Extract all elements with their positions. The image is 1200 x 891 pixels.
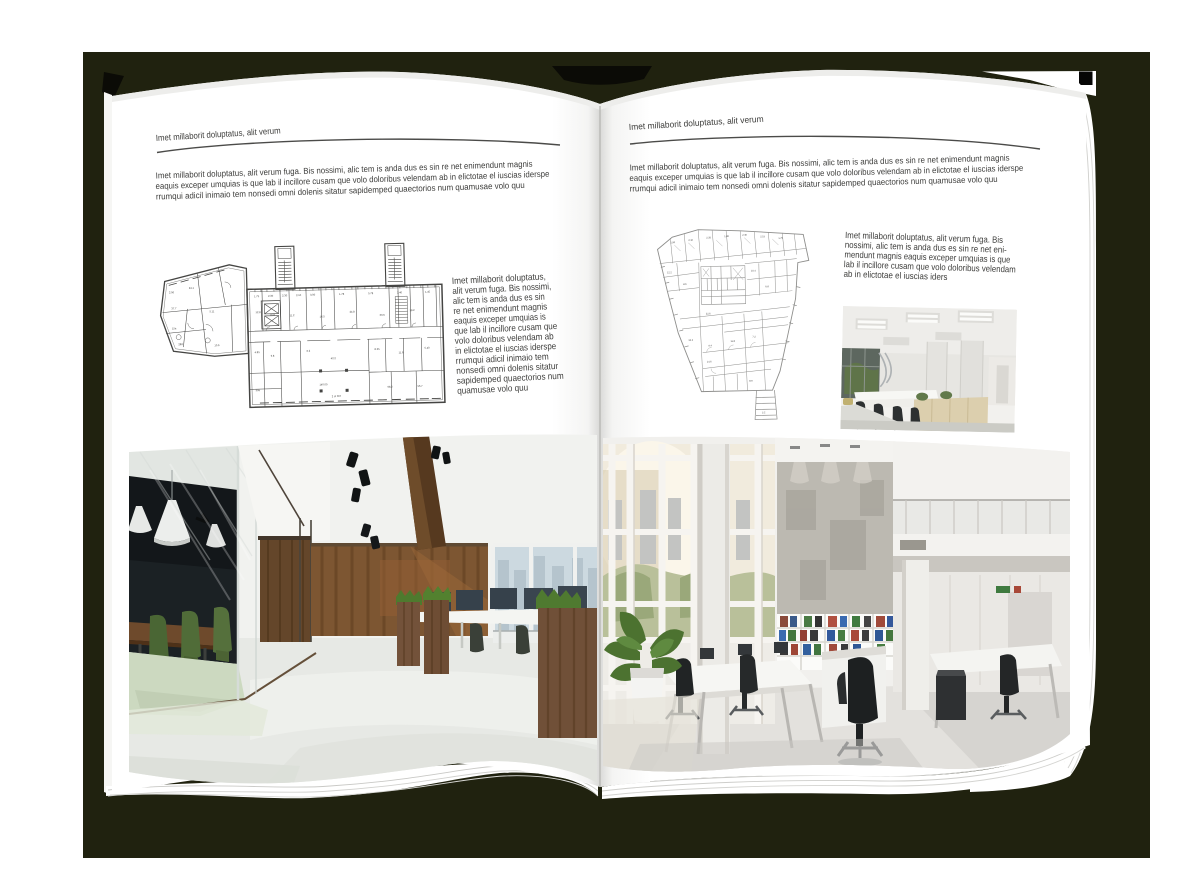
svg-text:5.40: 5.40	[424, 346, 430, 350]
svg-text:23a: 23a	[256, 388, 261, 392]
svg-text:11.2: 11.2	[290, 313, 296, 317]
svg-text:15a: 15a	[172, 326, 177, 330]
svg-text:2.35: 2.35	[706, 236, 711, 239]
svg-text:140.00: 140.00	[319, 382, 328, 386]
svg-text:16.5: 16.5	[320, 314, 326, 318]
svg-text:11.6: 11.6	[399, 350, 405, 354]
svg-text:24.8: 24.8	[349, 310, 355, 314]
svg-text:42.2: 42.2	[331, 356, 337, 360]
svg-text:1.75: 1.75	[254, 294, 260, 298]
svg-text:10.4: 10.4	[751, 269, 756, 272]
svg-text:2.10: 2.10	[296, 293, 302, 297]
svg-text:24.1: 24.1	[189, 286, 195, 290]
svg-text:2.40: 2.40	[742, 234, 747, 237]
svg-text:1.45: 1.45	[425, 290, 431, 294]
svg-text:288: 288	[178, 342, 183, 346]
svg-text:10.6: 10.6	[214, 343, 220, 347]
svg-text:1.75: 1.75	[778, 237, 783, 240]
svg-text:2.06: 2.06	[169, 290, 175, 294]
svg-text:56.7: 56.7	[417, 384, 423, 388]
svg-text:2 of 007: 2 of 007	[332, 394, 342, 398]
svg-text:2.30: 2.30	[282, 293, 288, 297]
svg-text:12.2: 12.2	[667, 271, 672, 274]
svg-text:22.6: 22.6	[706, 312, 711, 315]
svg-text:11.8: 11.8	[730, 340, 735, 343]
svg-text:10.8: 10.8	[270, 313, 276, 317]
svg-text:16.2: 16.2	[688, 339, 693, 342]
svg-text:30.6: 30.6	[380, 313, 386, 317]
svg-text:1.78: 1.78	[339, 292, 345, 296]
svg-text:2.40: 2.40	[397, 290, 403, 294]
svg-text:14.6: 14.6	[707, 360, 712, 363]
svg-text:2.30: 2.30	[268, 294, 274, 298]
svg-text:3.00: 3.00	[310, 293, 316, 297]
svg-text:2.15: 2.15	[760, 235, 765, 238]
svg-text:12.8: 12.8	[255, 310, 261, 314]
svg-text:2.10: 2.10	[688, 239, 693, 242]
svg-text:5.11: 5.11	[209, 309, 215, 313]
svg-text:1.90: 1.90	[670, 241, 675, 244]
svg-text:8.35: 8.35	[374, 347, 380, 351]
svg-text:18.2: 18.2	[409, 308, 415, 312]
svg-text:1.80: 1.80	[724, 235, 729, 238]
svg-text:98.2: 98.2	[387, 385, 393, 389]
svg-text:4.85: 4.85	[255, 350, 261, 354]
svg-text:5.78: 5.78	[368, 291, 374, 295]
svg-text:37.7: 37.7	[171, 306, 177, 310]
